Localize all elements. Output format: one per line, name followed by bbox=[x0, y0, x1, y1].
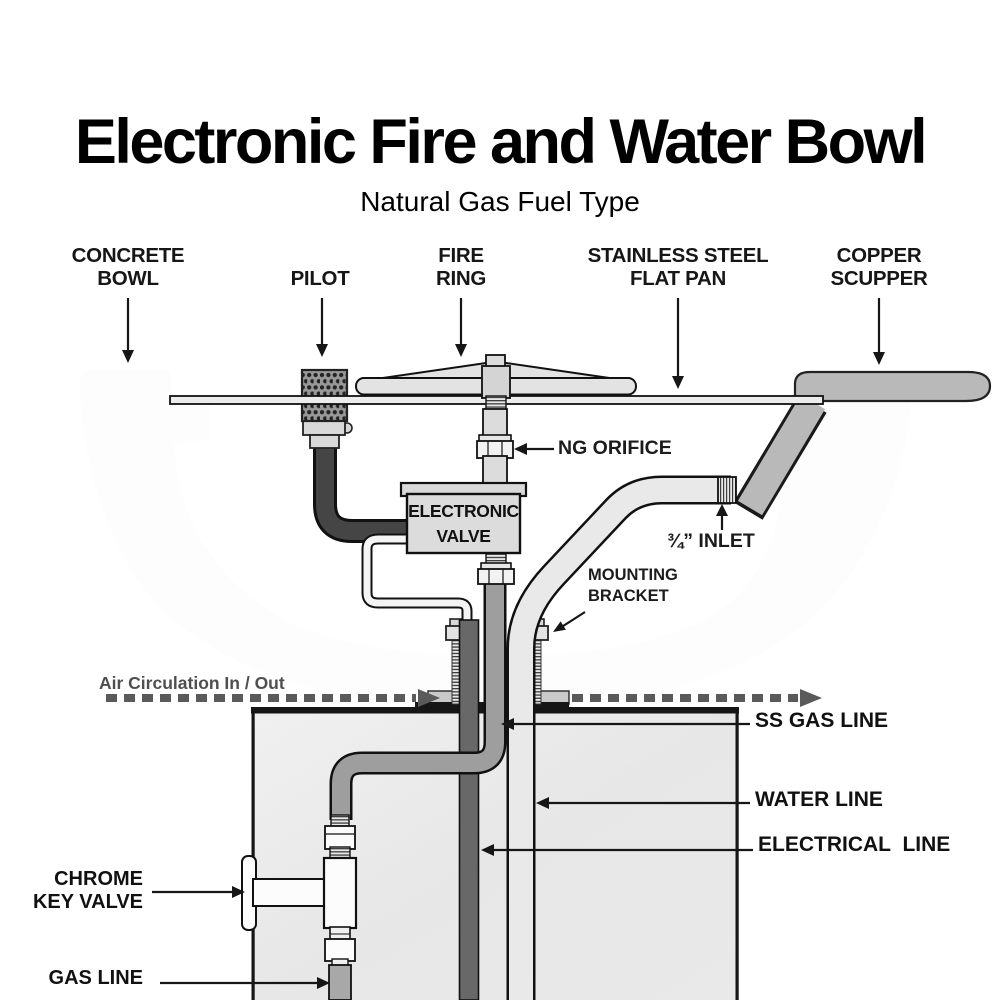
label-gas-line: GAS LINE bbox=[18, 967, 143, 990]
label-ng-orifice: NG ORIFICE bbox=[558, 437, 672, 460]
label-water-line: WATER LINE bbox=[755, 788, 883, 812]
page-title: Electronic Fire and Water Bowl bbox=[0, 106, 1000, 178]
label-mounting-bracket: MOUNTING BRACKET bbox=[588, 565, 678, 607]
fire-water-bowl-diagram: Electronic Fire and Water Bowl Natural G… bbox=[0, 0, 1000, 1000]
fire-ring-assembly bbox=[356, 355, 636, 484]
electrical-line-shape bbox=[460, 620, 479, 1000]
label-electronic-valve: ELECTRONIC VALVE bbox=[407, 499, 520, 549]
pedestal-right-edge bbox=[736, 712, 739, 1000]
label-air-circulation: Air Circulation In / Out bbox=[99, 673, 285, 694]
label-flat-pan: STAINLESS STEEL FLAT PAN bbox=[558, 244, 798, 290]
page-subtitle: Natural Gas Fuel Type bbox=[0, 186, 1000, 218]
label-inlet: ¾” INLET bbox=[667, 530, 755, 553]
label-pilot: PILOT bbox=[240, 267, 400, 290]
label-electrical-line: ELECTRICAL LINE bbox=[758, 833, 950, 857]
label-fire-ring: FIRE RING bbox=[381, 244, 541, 290]
label-concrete-bowl: CONCRETE BOWL bbox=[48, 244, 208, 290]
label-chrome-key-valve: CHROME KEY VALVE bbox=[18, 868, 143, 914]
key-valve-handle bbox=[253, 879, 327, 906]
label-ss-gas-line: SS GAS LINE bbox=[755, 709, 888, 733]
label-copper-scupper: COPPER SCUPPER bbox=[799, 244, 959, 290]
inlet-threads bbox=[718, 477, 736, 503]
gas-line-shape bbox=[329, 965, 351, 1000]
